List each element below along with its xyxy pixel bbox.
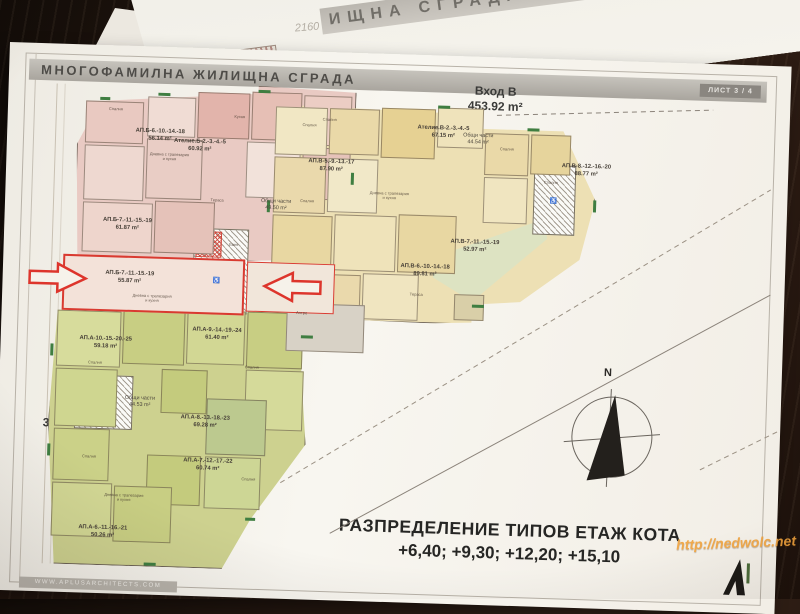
north-compass: [562, 388, 661, 489]
boundary-dashed-line: [280, 175, 770, 498]
highlight-arrow-right-icon: [29, 263, 86, 293]
plan-overlay: [0, 42, 792, 614]
handwritten-note: 2160: [294, 21, 319, 35]
north-arrow: [587, 394, 628, 481]
boundary-dashed-line: [497, 103, 713, 122]
photo-of-floorplan: { "back_sheet": { "partial_title": "ИЩНА…: [0, 0, 800, 599]
boundary-dashed-line: [700, 428, 780, 472]
back-sheet-title-banner: ИЩНА СГРАДА: [320, 0, 800, 34]
main-drawing-sheet: МНОГОФАМИЛНА ЖИЛИЩНА СГРАДА ЛИСТ 3 / 4 В…: [0, 42, 792, 614]
highlight-arrow-left-icon: [264, 272, 321, 302]
boundary-solid-line: [330, 281, 771, 546]
